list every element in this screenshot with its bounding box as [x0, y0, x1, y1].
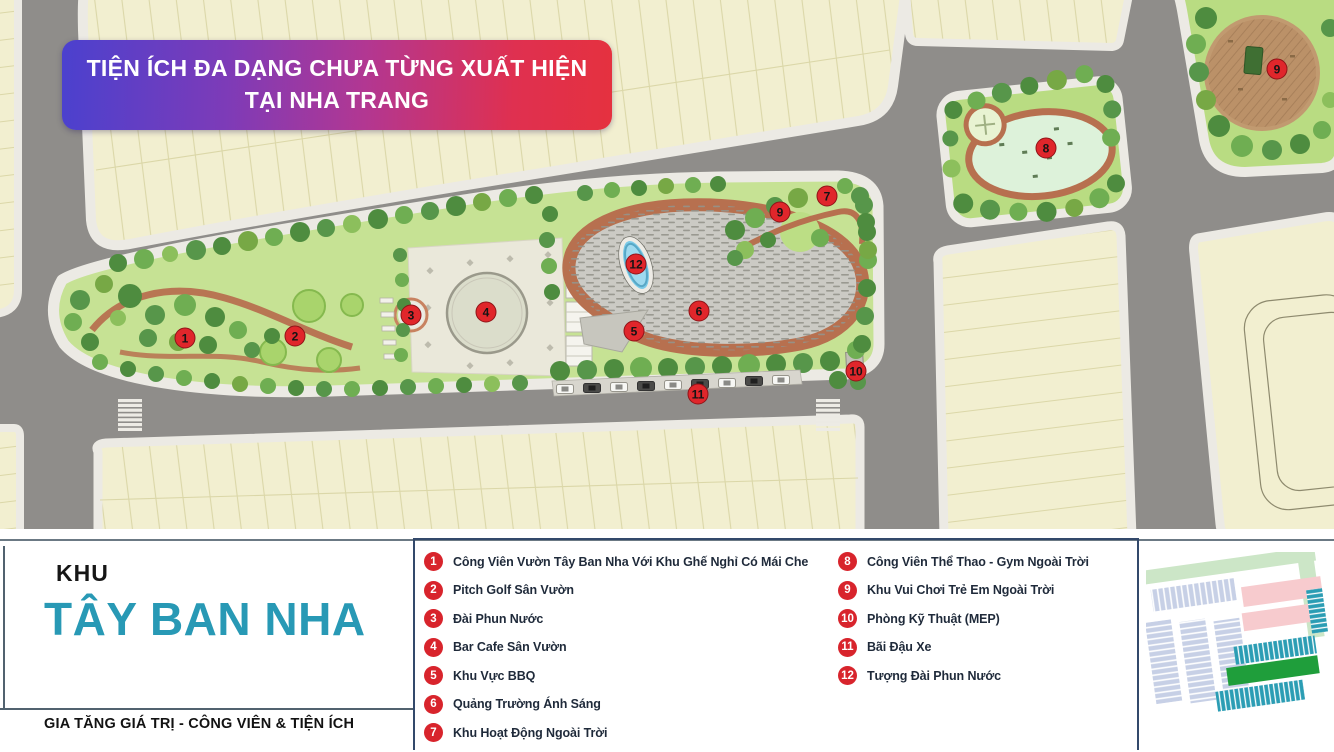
legend-number-badge: 8: [838, 552, 857, 571]
site-plan-map: 1 2 3 4 5 6 7 9 10 11 12 8 9 TIỆN ÍCH ĐA…: [0, 0, 1334, 537]
legend-number-badge: 11: [838, 638, 857, 657]
legend-label: Bãi Đậu Xe: [867, 640, 931, 654]
legend-item: 4 Bar Cafe Sân Vườn: [424, 638, 808, 657]
legend-item: 6 Quảng Trường Ánh Sáng: [424, 695, 808, 714]
legend-item: 5 Khu Vực BBQ: [424, 666, 808, 685]
legend-label: Công Viên Thể Thao - Gym Ngoài Trời: [867, 555, 1089, 569]
legend-number-badge: 9: [838, 581, 857, 600]
legend-label: Bar Cafe Sân Vườn: [453, 640, 567, 654]
legend-item: 3 Đài Phun Nước: [424, 609, 808, 628]
legend-number-badge: 6: [424, 695, 443, 714]
masterplan-inset: [1146, 552, 1334, 752]
legend-number-badge: 7: [424, 723, 443, 742]
banner-line1: TIỆN ÍCH ĐA DẠNG CHƯA TỪNG XUẤT HIỆN: [87, 53, 588, 85]
legend-column-left: 1 Công Viên Vườn Tây Ban Nha Với Khu Ghế…: [424, 552, 808, 752]
legend-label: Khu Vực BBQ: [453, 669, 535, 683]
legend-number-badge: 3: [424, 609, 443, 628]
banner-line2: TẠI NHA TRANG: [245, 85, 429, 117]
legend-label: Khu Hoạt Động Ngoài Trời: [453, 726, 607, 740]
legend-label: Khu Vui Chơi Trẻ Em Ngoài Trời: [867, 583, 1054, 597]
legend-number-badge: 1: [424, 552, 443, 571]
panel-left-border: [3, 546, 5, 708]
legend-label: Tượng Đài Phun Nước: [867, 669, 1001, 683]
legend-number-badge: 10: [838, 609, 857, 628]
zone-tagline: GIA TĂNG GIÁ TRỊ - CÔNG VIÊN & TIỆN ÍCH: [44, 716, 354, 732]
legend-item: 12 Tượng Đài Phun Nước: [838, 666, 1089, 685]
legend-label: Công Viên Vườn Tây Ban Nha Với Khu Ghế N…: [453, 555, 808, 569]
legend-number-badge: 2: [424, 581, 443, 600]
legend-column-right: 8 Công Viên Thể Thao - Gym Ngoài Trời 9 …: [838, 552, 1089, 695]
legend-number-badge: 5: [424, 666, 443, 685]
panel-separator-rule: [0, 708, 413, 710]
legend-label: Đài Phun Nước: [453, 612, 543, 626]
legend-number-badge: 4: [424, 638, 443, 657]
legend-number-badge: 12: [838, 666, 857, 685]
legend-item: 11 Bãi Đậu Xe: [838, 638, 1089, 657]
zone-kicker: KHU: [56, 560, 109, 587]
legend-label: Pitch Golf Sân Vườn: [453, 583, 574, 597]
legend-item: 9 Khu Vui Chơi Trẻ Em Ngoài Trời: [838, 581, 1089, 600]
legend-item: 10 Phòng Kỹ Thuật (MEP): [838, 609, 1089, 628]
legend-label: Phòng Kỹ Thuật (MEP): [867, 612, 1000, 626]
headline-banner: TIỆN ÍCH ĐA DẠNG CHƯA TỪNG XUẤT HIỆN TẠI…: [62, 40, 612, 130]
zone-title: TÂY BAN NHA: [44, 592, 366, 646]
legend-item: 7 Khu Hoạt Động Ngoài Trời: [424, 723, 808, 742]
legend-item: 8 Công Viên Thể Thao - Gym Ngoài Trời: [838, 552, 1089, 571]
legend-item: 1 Công Viên Vườn Tây Ban Nha Với Khu Ghế…: [424, 552, 808, 571]
legend-label: Quảng Trường Ánh Sáng: [453, 697, 601, 711]
legend-item: 2 Pitch Golf Sân Vườn: [424, 581, 808, 600]
